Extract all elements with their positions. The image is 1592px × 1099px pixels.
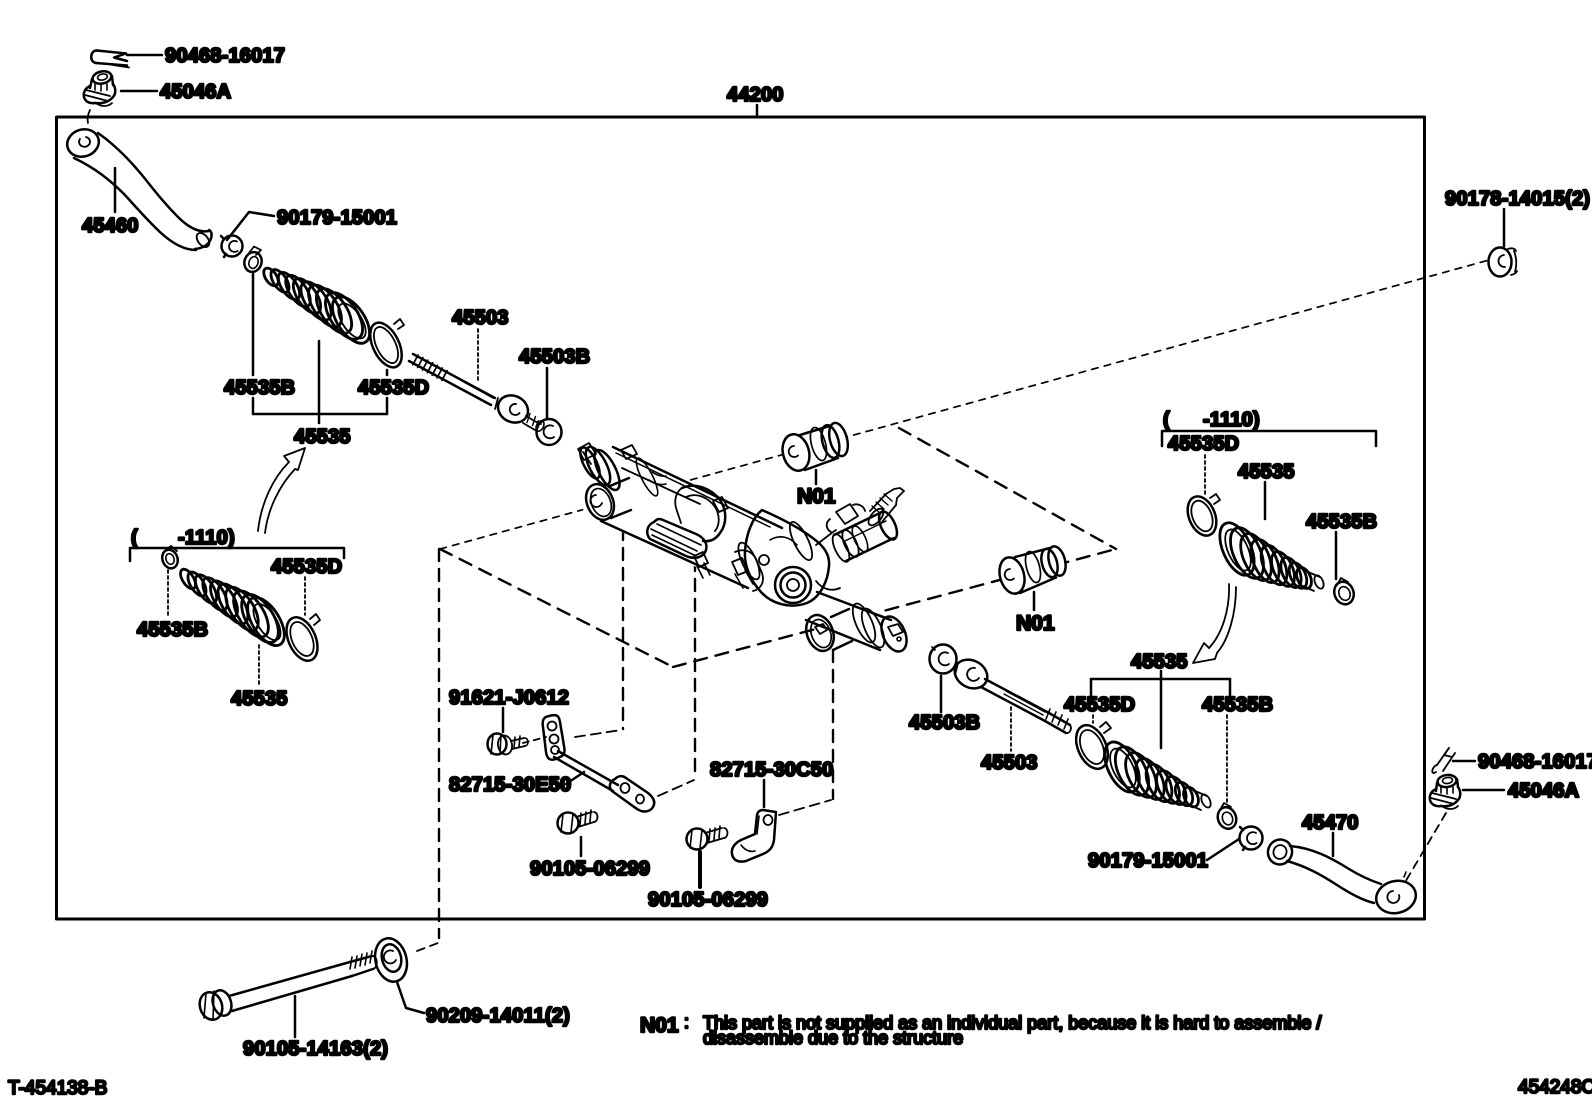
- svg-text:T-454138-B: T-454138-B: [8, 1078, 107, 1099]
- svg-text:45535B: 45535B: [1306, 511, 1377, 533]
- svg-text:45046A: 45046A: [160, 81, 231, 103]
- svg-text:90468-16017: 90468-16017: [165, 45, 285, 67]
- svg-text:N01: N01: [797, 485, 836, 508]
- svg-text:45503: 45503: [981, 752, 1038, 774]
- svg-text:90105-14163(2): 90105-14163(2): [243, 1038, 388, 1060]
- svg-text:45535D: 45535D: [1064, 694, 1135, 716]
- svg-text:45503B: 45503B: [519, 346, 590, 368]
- svg-text:45535: 45535: [1131, 651, 1188, 673]
- svg-text:45535B: 45535B: [1202, 694, 1273, 716]
- svg-text:82715-30E50: 82715-30E50: [449, 774, 571, 796]
- svg-text:90179-15001: 90179-15001: [277, 207, 397, 229]
- svg-text:91621-J0612: 91621-J0612: [449, 687, 569, 709]
- svg-text:45535B: 45535B: [224, 377, 295, 399]
- svg-text:45535: 45535: [1238, 461, 1295, 483]
- svg-text:45535D: 45535D: [271, 556, 342, 578]
- svg-text:N01: N01: [1016, 612, 1055, 635]
- svg-text:45535: 45535: [294, 426, 351, 448]
- svg-text:90105-06299: 90105-06299: [530, 858, 650, 880]
- svg-text:(: (: [1163, 409, 1170, 431]
- svg-text:45535D: 45535D: [1168, 433, 1239, 455]
- svg-text:454248C: 454248C: [1518, 1077, 1592, 1098]
- svg-text:45470: 45470: [1302, 812, 1359, 834]
- svg-text:44200: 44200: [727, 84, 784, 106]
- svg-text:45535: 45535: [231, 688, 288, 710]
- svg-text:(: (: [131, 527, 138, 549]
- svg-text:90468-16017: 90468-16017: [1478, 751, 1592, 773]
- svg-text:45535B: 45535B: [137, 619, 208, 641]
- svg-text:-1110): -1110): [1203, 409, 1260, 431]
- svg-text:45460: 45460: [82, 215, 139, 237]
- svg-text:-1110): -1110): [178, 527, 235, 549]
- svg-text:N01: N01: [640, 1014, 679, 1037]
- svg-text:45046A: 45046A: [1508, 780, 1579, 802]
- svg-text:45503B: 45503B: [909, 712, 980, 734]
- svg-text:45535D: 45535D: [358, 377, 429, 399]
- svg-text:45503: 45503: [452, 307, 509, 329]
- svg-text:90105-06299: 90105-06299: [648, 889, 768, 911]
- svg-text:90178-14015(2): 90178-14015(2): [1445, 188, 1590, 210]
- svg-text:82715-30C50: 82715-30C50: [710, 759, 833, 781]
- svg-text:90209-14011(2): 90209-14011(2): [426, 1005, 570, 1027]
- svg-text:disassemble due to the structu: disassemble due to the structure: [703, 1028, 963, 1048]
- svg-text::: :: [684, 1012, 689, 1032]
- svg-text:90179-15001: 90179-15001: [1088, 850, 1208, 872]
